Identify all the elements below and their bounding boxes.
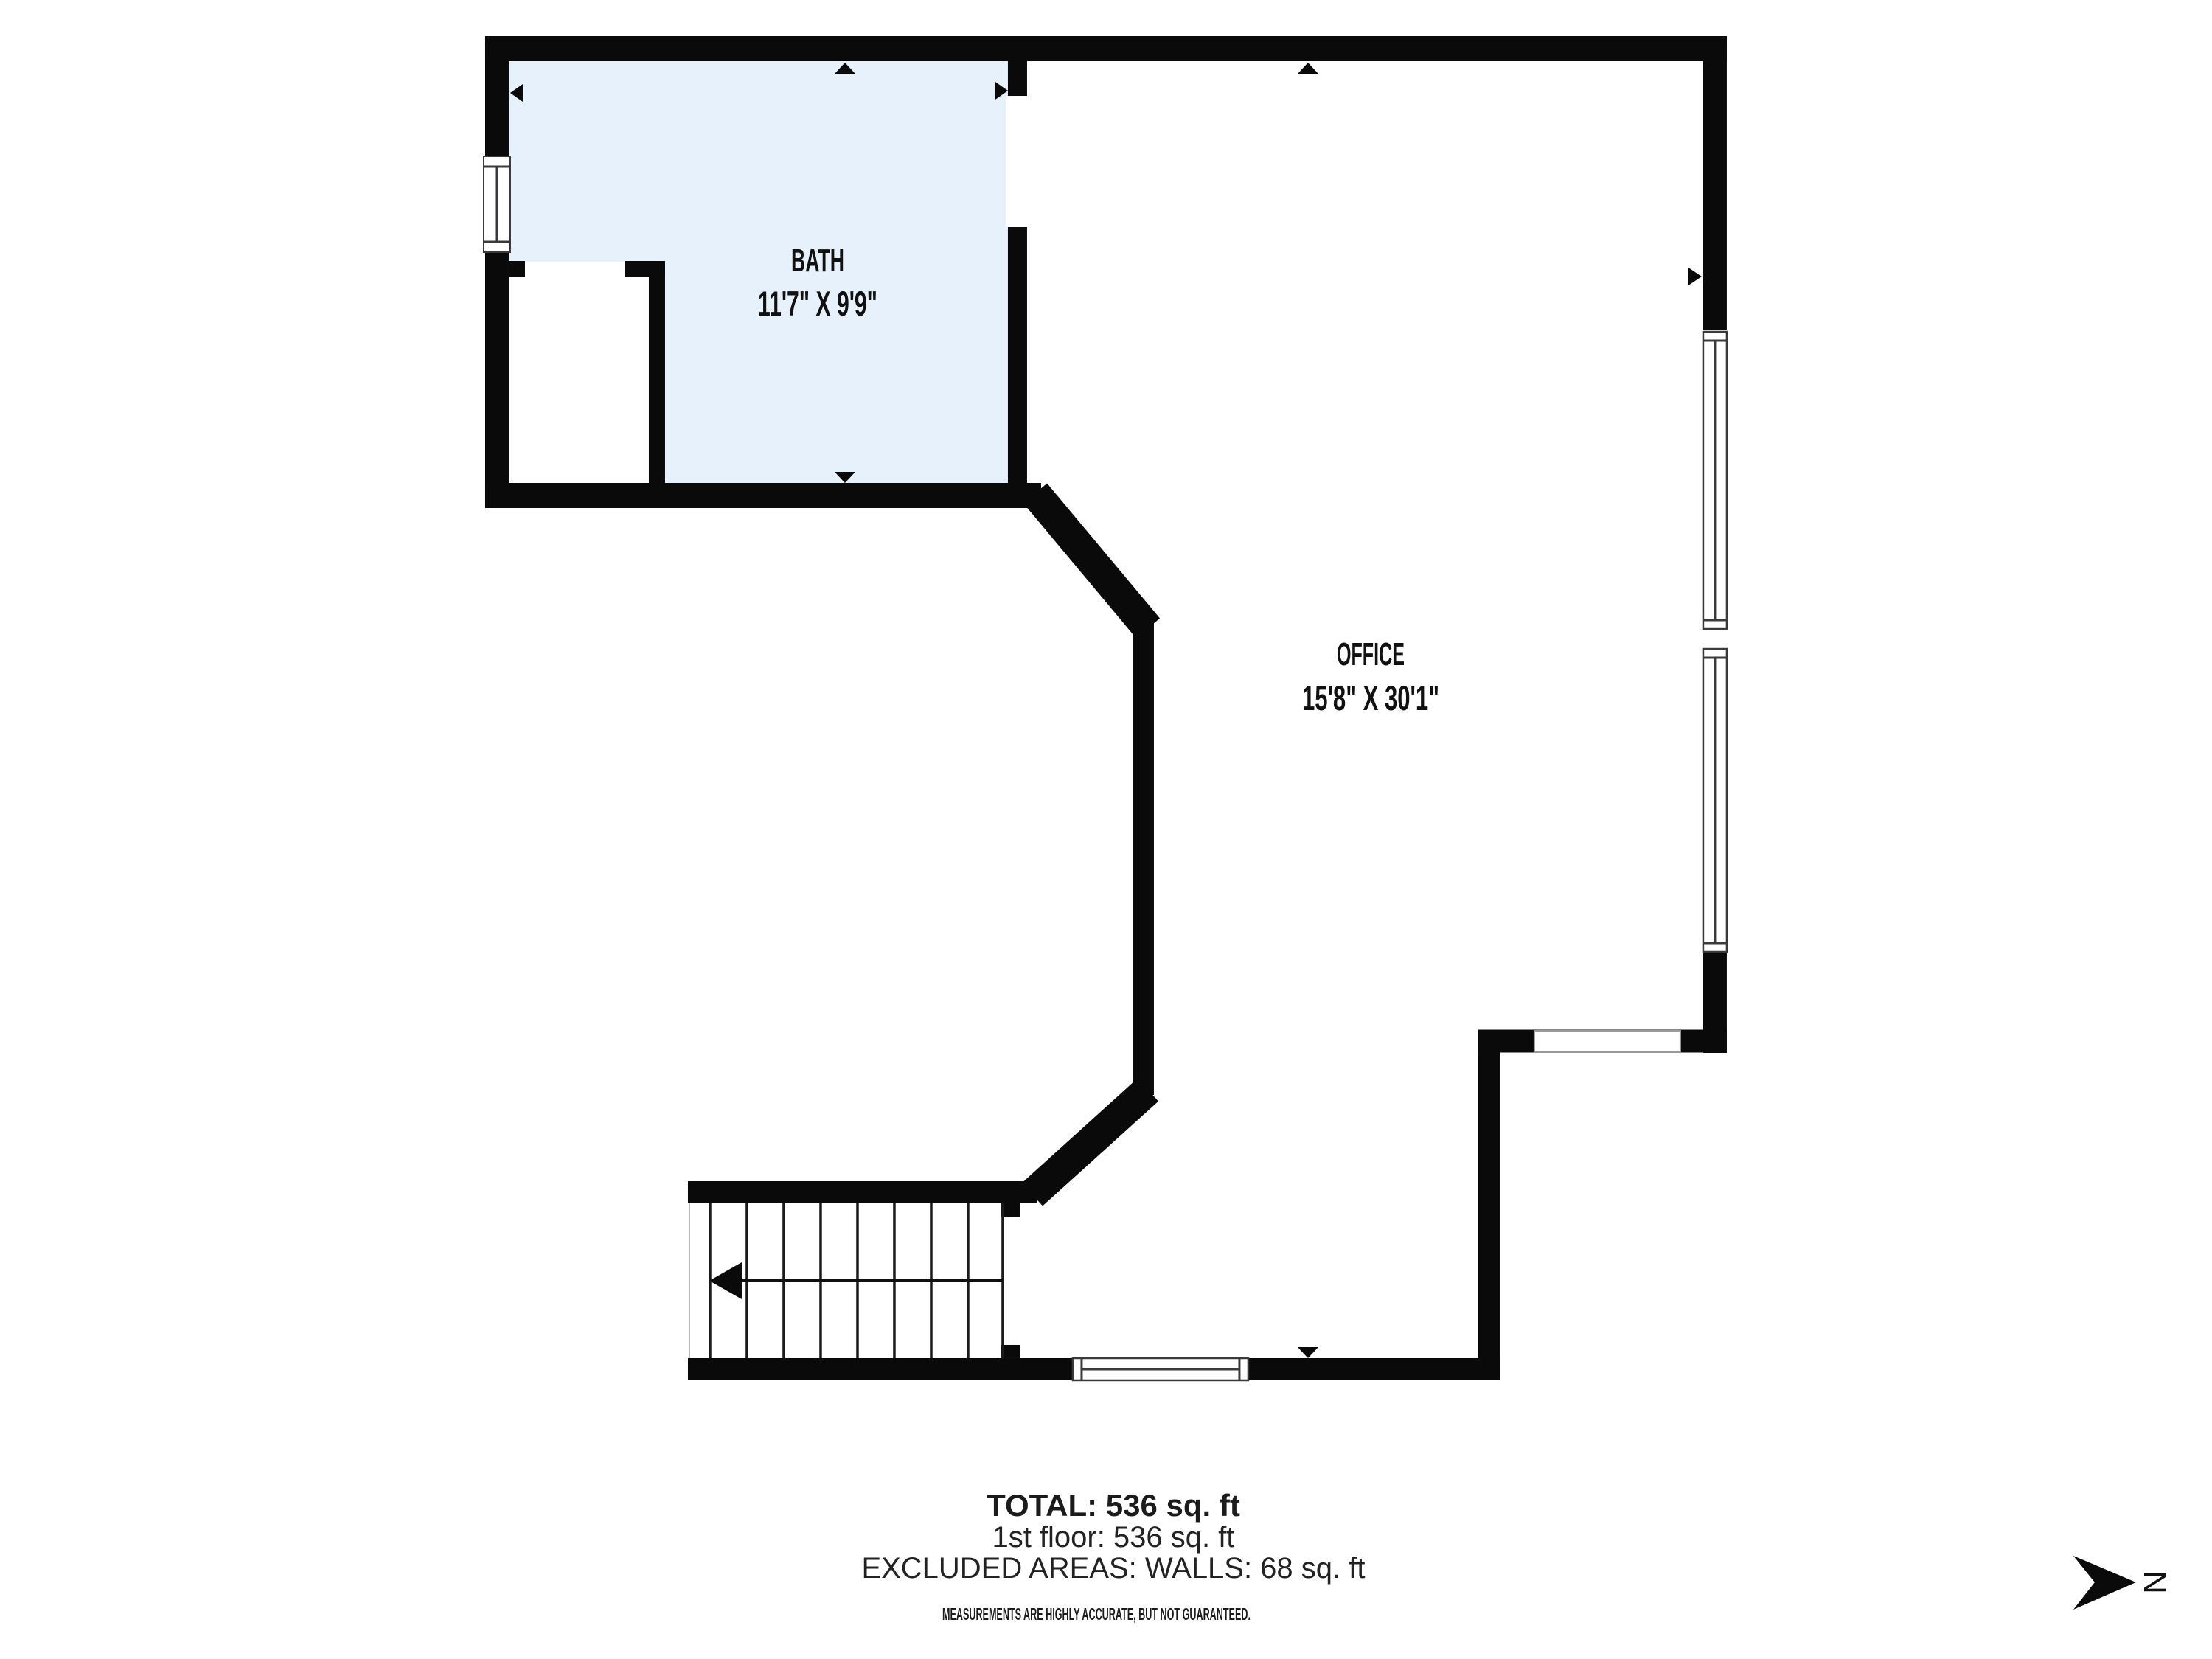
stair-stub-top	[1001, 1203, 1020, 1217]
bath-closet-fill	[509, 262, 649, 483]
summary-disclaimer: MEASUREMENTS ARE HIGHLY ACCURATE, BUT NO…	[942, 1604, 1251, 1624]
north-compass: N	[2073, 1556, 2173, 1610]
wall-diagonal-lower	[1032, 1090, 1148, 1194]
window-right-lower	[1703, 649, 1727, 952]
window-bottom	[1073, 1358, 1248, 1380]
summary-total: TOTAL: 536 sq. ft	[987, 1488, 1240, 1523]
summary-excluded: EXCLUDED AREAS: WALLS: 68 sq. ft	[862, 1552, 1366, 1585]
staircase	[689, 1203, 1003, 1358]
window-right-upper	[1703, 332, 1727, 629]
office-label: OFFICE	[1337, 636, 1405, 672]
north-arrow-icon	[2073, 1556, 2136, 1610]
floor-plan: BATH 11'7" X 9'9" OFFICE 15'8" X 30'1" T…	[0, 0, 2212, 1659]
window-bath-left	[484, 156, 510, 252]
arrow-office-top	[1298, 63, 1318, 74]
wall-diagonal-upper	[1035, 493, 1148, 628]
north-letter: N	[2137, 1571, 2173, 1594]
bath-dimensions: 11'7" X 9'9"	[758, 284, 877, 323]
stair-stub-bottom	[1001, 1345, 1020, 1358]
bath-door-opening	[1006, 96, 1029, 227]
summary-floor: 1st floor: 536 sq. ft	[992, 1521, 1235, 1554]
arrow-bottom-wall	[1298, 1347, 1318, 1358]
floor-plan-page: BATH 11'7" X 9'9" OFFICE 15'8" X 30'1" T…	[0, 0, 2212, 1659]
office-dimensions: 15'8" X 30'1"	[1302, 678, 1439, 717]
window-notch	[1534, 1031, 1680, 1052]
bath-label: BATH	[791, 243, 844, 279]
arrow-right-wall-door	[1688, 268, 1702, 285]
stair-direction-arrow	[709, 1262, 742, 1299]
